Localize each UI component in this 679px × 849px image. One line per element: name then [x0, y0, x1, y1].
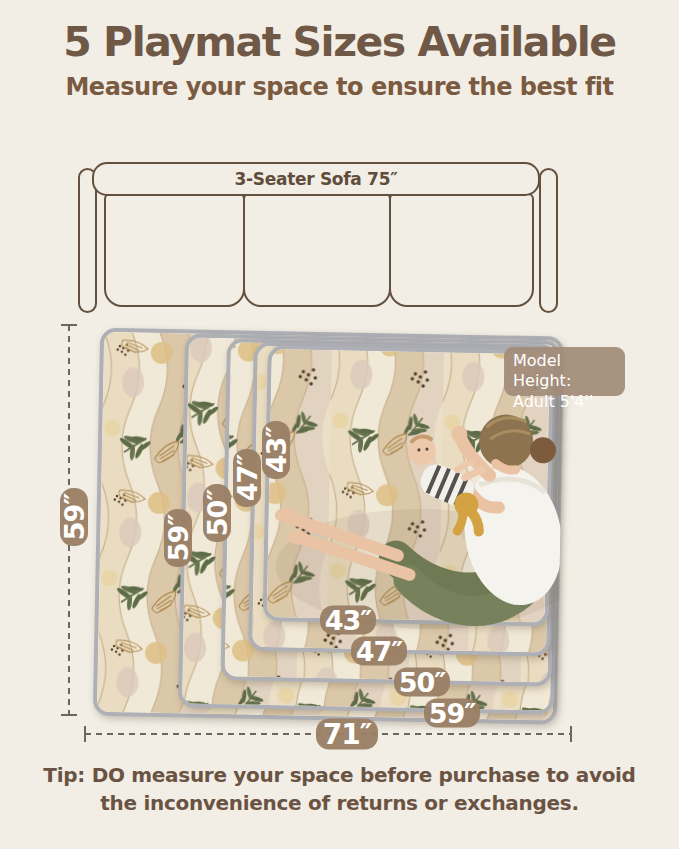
header: 5 Playmat Sizes Available Measure your s…: [0, 0, 679, 101]
sofa-seat-2: [243, 193, 391, 307]
infographic-page: 5 Playmat Sizes Available Measure your s…: [0, 0, 679, 849]
sofa-arm-right: [539, 168, 558, 313]
sofa-backrest: 3-Seater Sofa 75″: [92, 162, 540, 196]
page-title: 5 Playmat Sizes Available: [0, 18, 679, 66]
badge-mat47-width: 47″: [351, 637, 407, 666]
badge-mat50-width: 50″: [394, 668, 450, 697]
badge-mat59-width: 59″: [424, 699, 480, 728]
tip-line1: Tip: DO measure your space before purcha…: [0, 761, 679, 789]
model-height-note: Model Height: Adult 5'4'': [504, 347, 625, 396]
badge-mat43-width: 43″: [320, 606, 376, 635]
badge-mat47-height: 47″: [233, 449, 261, 507]
sofa-seat-3: [389, 193, 534, 307]
model-height-line2: Adult 5'4'': [513, 392, 616, 412]
sofa-size-label: 3-Seater Sofa 75″: [235, 169, 398, 189]
badge-mat43-height: 43″: [262, 421, 290, 479]
sofa-seat-1: [104, 193, 245, 307]
badge-overall-height-59: 59″: [60, 488, 88, 546]
badge-mat59-height: 59″: [164, 509, 192, 567]
footer-tip: Tip: DO measure your space before purcha…: [0, 761, 679, 817]
model-height-line1: Model Height:: [513, 351, 616, 392]
dimension-tick: [61, 714, 77, 716]
badge-overall-width-71: 71″: [316, 719, 378, 750]
tip-line2: the inconvenience of returns or exchange…: [0, 789, 679, 817]
dimension-tick: [570, 726, 572, 742]
badge-mat50-height: 50″: [203, 484, 231, 542]
page-subtitle: Measure your space to ensure the best fi…: [0, 73, 679, 101]
